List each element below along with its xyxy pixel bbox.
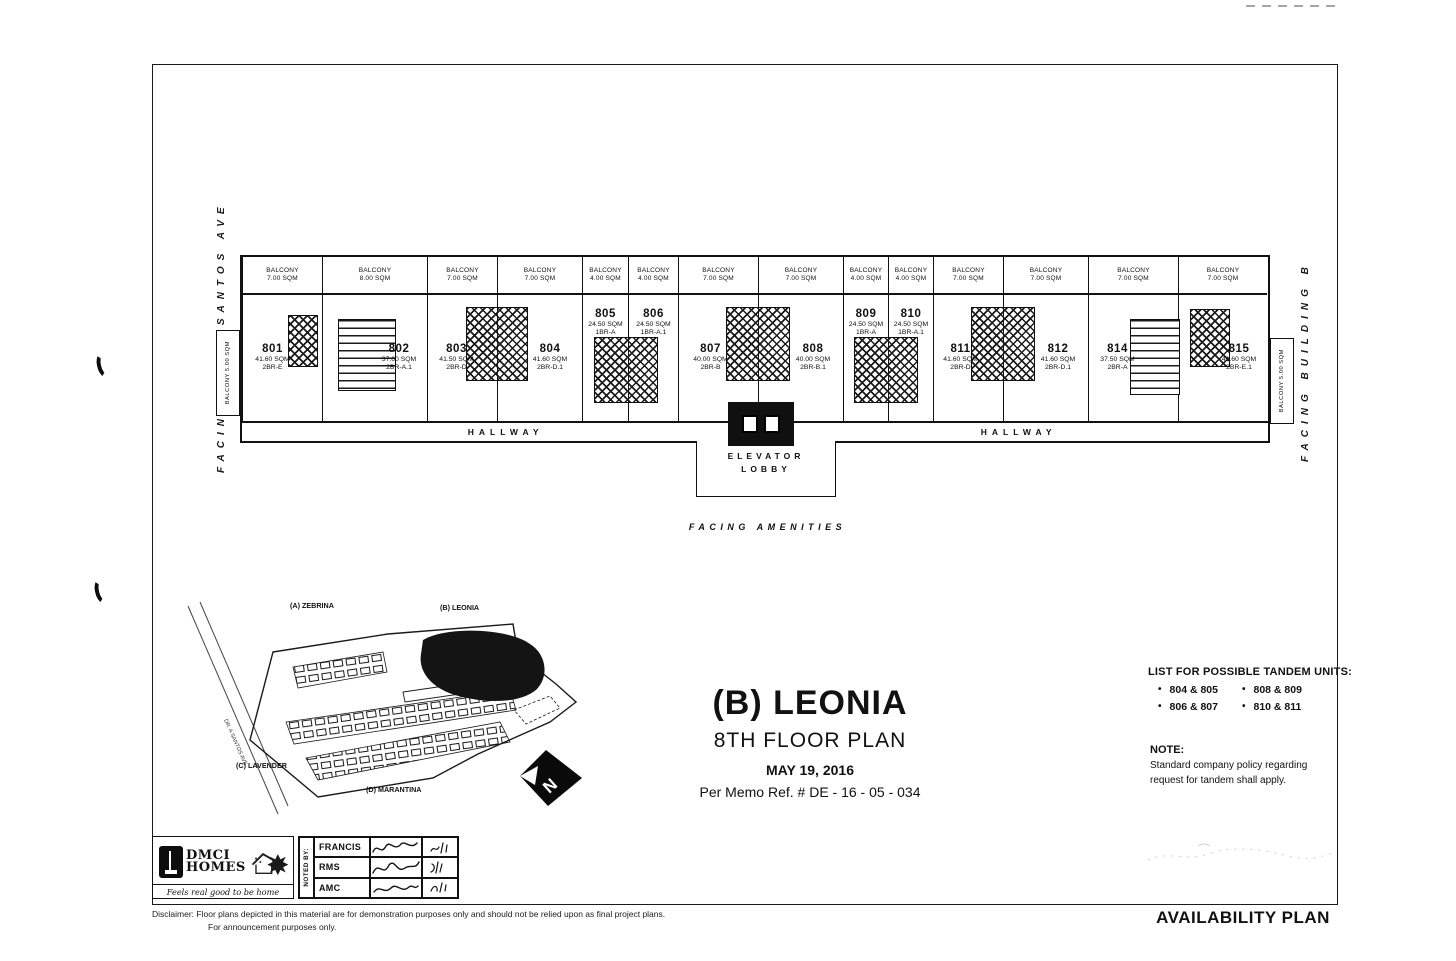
site-map: DR. A SANTOS AVE (A) ZEBRINA (B) LEONIA … <box>178 592 598 832</box>
note-block: NOTE: Standard company policy regarding … <box>1150 744 1350 788</box>
noted-by-row-amc: AMC <box>315 877 457 897</box>
signature-scribble <box>371 879 423 897</box>
house-sketch-icon <box>249 845 289 879</box>
tandem-units-list: LIST FOR POSSIBLE TANDEM UNITS: 804 & 80… <box>1148 666 1360 718</box>
balcony-label: BALCONY4.00 SQM <box>583 257 628 295</box>
unit-type: 2BR-B <box>671 364 750 371</box>
hallway-label-right: HALLWAY <box>981 427 1057 437</box>
dmci-homes-logo: DMCI HOMES Feels real good to be home <box>152 836 294 899</box>
balcony-label: BALCONY7.00 SQM <box>679 257 758 295</box>
unit-area: 37.50 SQM <box>1073 356 1162 363</box>
dmci-homes-wordmark: DMCI HOMES <box>186 850 246 874</box>
note-line2: request for tandem shall apply. <box>1150 775 1286 786</box>
unit-number: 804 <box>508 343 592 355</box>
disclaimer: Disclaimer: Floor plans depicted in this… <box>152 908 665 934</box>
hole-punch-mark <box>94 351 115 380</box>
dmci-tagline: Feels real good to be home <box>153 884 293 898</box>
floor-title: 8TH FLOOR PLAN <box>625 729 995 753</box>
elevator-lobby-label: LOBBY <box>697 463 835 476</box>
road-line <box>200 602 288 806</box>
balcony-label: BALCONY7.00 SQM <box>934 257 1003 295</box>
unit-number: 807 <box>671 343 750 355</box>
noted-by-row-francis: FRANCIS <box>315 838 457 856</box>
unit-type: 1BR-A <box>844 329 888 336</box>
unit-number: 809 <box>844 308 888 320</box>
unit-number: 801 <box>233 343 312 355</box>
elevator-lobby-label: ELEVATOR <box>697 450 835 463</box>
unit-type: 2BR-D.1 <box>508 364 592 371</box>
unit-core-hatch <box>854 337 918 403</box>
unit-type: 2BR-A <box>1073 364 1162 371</box>
unit-number: 808 <box>771 343 855 355</box>
date-scribble <box>423 879 457 897</box>
note-heading: NOTE: <box>1150 744 1350 756</box>
unit-area: 40.00 SQM <box>671 356 750 363</box>
balcony-label: BALCONY8.00 SQM <box>323 257 427 295</box>
disclaimer-line1: Floor plans depicted in this material ar… <box>196 909 665 919</box>
facing-amenities-label: FACING AMENITIES <box>655 522 880 532</box>
disclaimer-label: Disclaimer: <box>152 909 194 919</box>
note-line1: Standard company policy regarding <box>1150 760 1307 771</box>
plan-date: MAY 19, 2016 <box>625 762 995 778</box>
balcony-label: BALCONY4.00 SQM <box>844 257 888 295</box>
unit-room: 80141.60 SQM2BR-E <box>243 295 322 421</box>
unit-type: 1BR-A.1 <box>629 329 678 336</box>
side-balcony-left-label: BALCONY 5.00 SQM <box>225 341 231 404</box>
unit-area: 40.00 SQM <box>771 356 855 363</box>
title-block: (B) LEONIA 8TH FLOOR PLAN MAY 19, 2016 P… <box>625 684 995 800</box>
unit-area: 41.60 SQM <box>926 356 995 363</box>
unit-number: 805 <box>583 308 628 320</box>
unit-type: 2BR-B.1 <box>771 364 855 371</box>
unit-number: 810 <box>889 308 933 320</box>
unit-area: 41.60 SQM <box>233 356 312 363</box>
balcony-label: BALCONY4.00 SQM <box>629 257 678 295</box>
signer-name: FRANCIS <box>315 838 371 856</box>
balcony-label: BALCONY7.00 SQM <box>243 257 322 295</box>
unit-core-hatch <box>594 337 658 403</box>
tandem-heading: LIST FOR POSSIBLE TANDEM UNITS: <box>1148 666 1360 678</box>
scan-artifact-dashes <box>1246 5 1342 7</box>
units-row: BALCONY7.00 SQM80141.60 SQM2BR-EBALCONY8… <box>240 255 1270 421</box>
balcony-label: BALCONY7.00 SQM <box>1179 257 1267 295</box>
unit-type: 1BR-A <box>583 329 628 336</box>
tandem-column-1: 804 & 805806 & 807 <box>1158 684 1218 718</box>
unit-area: 24.50 SQM <box>629 321 678 328</box>
tandem-pair: 810 & 811 <box>1242 701 1302 713</box>
sitemap-label-leonia: (B) LEONIA <box>440 603 479 612</box>
unit-area: 24.50 SQM <box>583 321 628 328</box>
unit-area: 41.60 SQM <box>508 356 592 363</box>
scanned-availability-plan-sheet: FACING DR. A SANTOS AVE FACING BUILDING … <box>0 0 1456 961</box>
tandem-pair: 808 & 809 <box>1242 684 1302 696</box>
balcony-label: BALCONY4.00 SQM <box>889 257 933 295</box>
memo-reference: Per Memo Ref. # DE - 16 - 05 - 034 <box>625 784 995 800</box>
signature-scribble <box>371 838 423 856</box>
sitemap-label-marantina: (D) MARANTINA <box>366 785 422 794</box>
unit-number: 814 <box>1073 343 1162 355</box>
balcony-label: BALCONY7.00 SQM <box>428 257 497 295</box>
disclaimer-line2: For announcement purposes only. <box>152 921 665 934</box>
date-scribble <box>423 858 457 876</box>
availability-plan-title: AVAILABILITY PLAN <box>1128 908 1358 928</box>
sitemap-label-zebrina: (A) ZEBRINA <box>290 601 334 610</box>
unit-area: 41.50 SQM <box>422 356 491 363</box>
noted-by-table: NOTED BY: FRANCISRMSAMC <box>298 836 459 899</box>
unit-number: 803 <box>422 343 491 355</box>
signature-scribble <box>371 858 423 876</box>
noted-by-label: NOTED BY: <box>303 848 310 887</box>
balcony-label: BALCONY7.00 SQM <box>759 257 843 295</box>
tandem-column-2: 808 & 809810 & 811 <box>1242 684 1302 718</box>
signer-name: AMC <box>315 879 371 897</box>
balcony-label: BALCONY7.00 SQM <box>1089 257 1178 295</box>
unit-area: 24.50 SQM <box>889 321 933 328</box>
elevator-lobby: ELEVATOR LOBBY <box>696 441 836 497</box>
unit-type: 2BR-E <box>233 364 312 371</box>
hole-punch-mark <box>92 577 113 606</box>
unit-type: 1BR-A.1 <box>889 329 933 336</box>
facing-building-b-label: FACING BUILDING B <box>1300 282 1311 462</box>
north-arrow-icon: N <box>520 750 582 806</box>
unit-number: 815 <box>1195 343 1283 355</box>
hallway-label-left: HALLWAY <box>468 427 544 437</box>
unit-type: 2BR-D <box>926 364 995 371</box>
unit-type: 2BR-D <box>422 364 491 371</box>
unit-area: 41.60 SQM <box>1195 356 1283 363</box>
unit-type: 2BR-E.1 <box>1195 364 1283 371</box>
noted-by-row-rms: RMS <box>315 856 457 876</box>
unit-number: 811 <box>926 343 995 355</box>
road-label: DR. A SANTOS AVE <box>222 718 248 766</box>
sitemap-label-lavender: (C) LAVENDER <box>236 761 288 770</box>
date-scribble <box>423 838 457 856</box>
dmci-tower-icon <box>159 846 183 878</box>
balcony-label: BALCONY7.00 SQM <box>1004 257 1088 295</box>
unit-number: 806 <box>629 308 678 320</box>
unit-area: 24.50 SQM <box>844 321 888 328</box>
road-line <box>188 606 278 814</box>
elevator-shaft <box>728 402 794 446</box>
signer-name: RMS <box>315 858 371 876</box>
balcony-label: BALCONY7.00 SQM <box>498 257 582 295</box>
building-title: (B) LEONIA <box>625 684 995 723</box>
tandem-pair: 806 & 807 <box>1158 701 1218 713</box>
tandem-pair: 804 & 805 <box>1158 684 1218 696</box>
faint-pencil-smudge <box>1138 840 1348 868</box>
